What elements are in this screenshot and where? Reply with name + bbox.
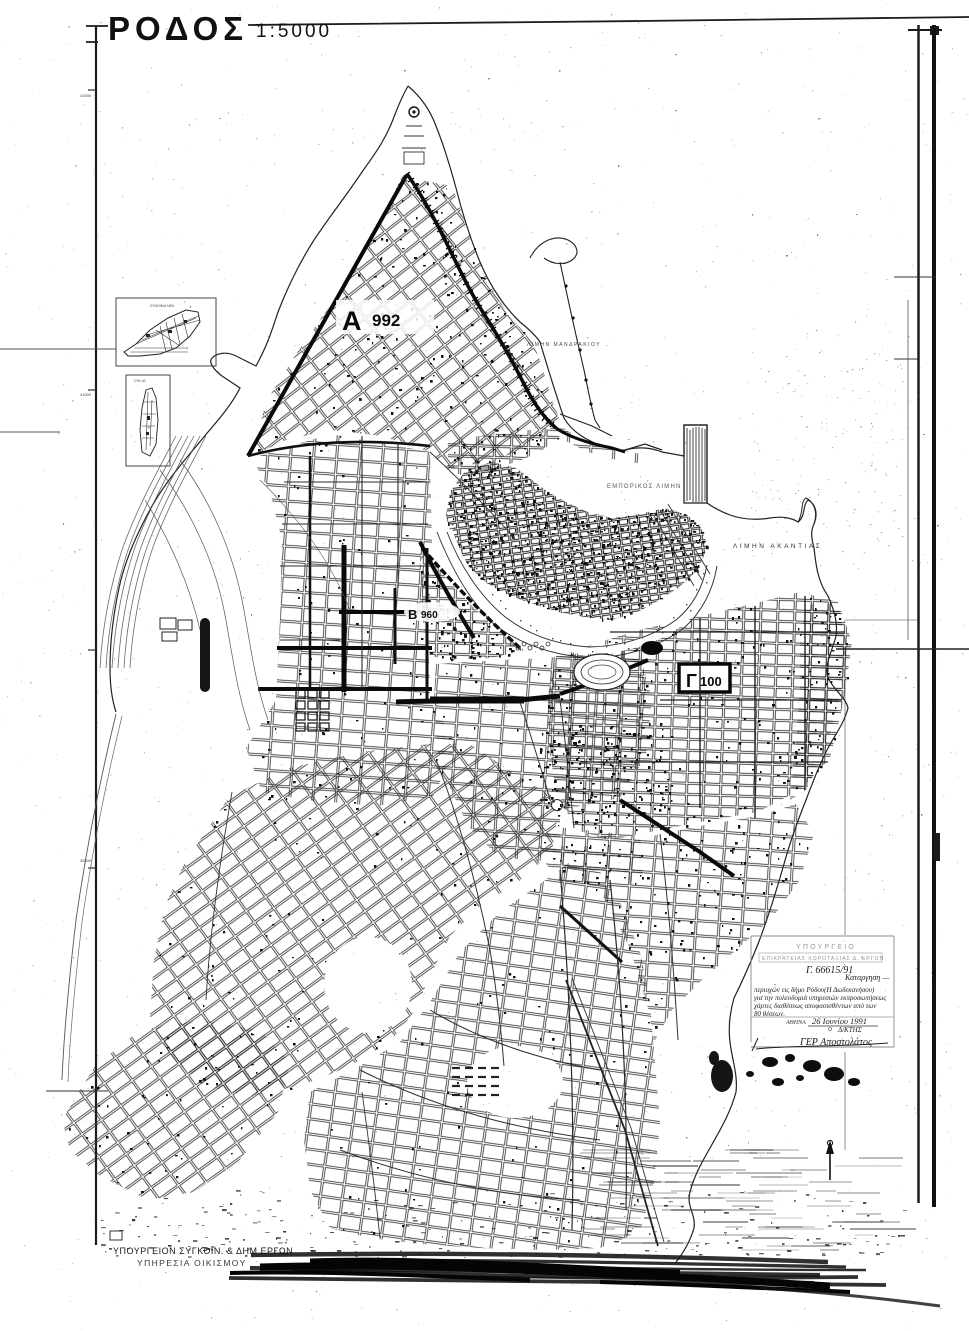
svg-text:ΑΘΗΝΑ: ΑΘΗΝΑ — [785, 1020, 806, 1026]
svg-text:ΣΥΝ. ΑΓ.: ΣΥΝ. ΑΓ. — [134, 379, 147, 383]
svg-text:41000: 41000 — [80, 392, 92, 397]
svg-text:42500: 42500 — [80, 93, 92, 98]
svg-text:26 Ιουνίου 1991: 26 Ιουνίου 1991 — [812, 1016, 867, 1026]
svg-text:Γ: Γ — [686, 671, 697, 691]
svg-text:960: 960 — [421, 610, 438, 621]
svg-text:για την πολεοδομιά υπηρεσιών ε: για την πολεοδομιά υπηρεσιών εκπροσωπήσε… — [754, 994, 886, 1002]
svg-text:ΕΠΙΚΡΑΤΕΙΑΣ ΧΩΡΟΤΑΞΙΑΣ Δ. ΕΡΓΩ: ΕΠΙΚΡΑΤΕΙΑΣ ΧΩΡΟΤΑΞΙΑΣ Δ. ΕΡΓΩΝ — [762, 956, 884, 962]
svg-text:80 θέσεων.: 80 θέσεων. — [754, 1010, 785, 1018]
svg-text:Α: Α — [342, 306, 362, 336]
svg-text:ΣΥΝΟΙΚΙΑ ΝΕΑ: ΣΥΝΟΙΚΙΑ ΝΕΑ — [150, 304, 175, 308]
svg-text:ΥΠΗΡΕΣΙΑ ΟΙΚΙΣΜΟΥ: ΥΠΗΡΕΣΙΑ ΟΙΚΙΣΜΟΥ — [137, 1258, 247, 1268]
svg-text:1:5000: 1:5000 — [256, 21, 332, 42]
svg-text:Καταργηση —: Καταργηση — — [844, 973, 890, 982]
svg-text:Δ/ΚΤΗΣ: Δ/ΚΤΗΣ — [837, 1026, 863, 1034]
svg-text:ΡΟΔΟΣ: ΡΟΔΟΣ — [108, 10, 248, 47]
svg-text:ΛΙΜΗΝ ΜΑΝΔΡΑΚΙΟΥ: ΛΙΜΗΝ ΜΑΝΔΡΑΚΙΟΥ — [527, 342, 601, 348]
svg-text:περιοχών εις δήμο Ρόδου(Η Δωδε: περιοχών εις δήμο Ρόδου(Η Δωδεκανήσου) — [754, 986, 875, 994]
svg-text:Β: Β — [408, 607, 417, 622]
svg-text:χάρτες διαθέσεως αποφασισθέντω: χάρτες διαθέσεως αποφασισθέντων από των — [753, 1002, 877, 1010]
svg-text:100: 100 — [700, 674, 722, 689]
svg-text:992: 992 — [372, 311, 400, 330]
svg-text:ΕΜΠΟΡΙΚΟΣ ΛΙΜΗΝ: ΕΜΠΟΡΙΚΟΣ ΛΙΜΗΝ — [607, 484, 682, 490]
svg-text:ΥΠΟΥΡΓΕΙΟ: ΥΠΟΥΡΓΕΙΟ — [796, 944, 856, 951]
svg-text:ΛΙΜΗΝ ΑΚΑΝΤΙΑΣ: ΛΙΜΗΝ ΑΚΑΝΤΙΑΣ — [733, 543, 822, 550]
